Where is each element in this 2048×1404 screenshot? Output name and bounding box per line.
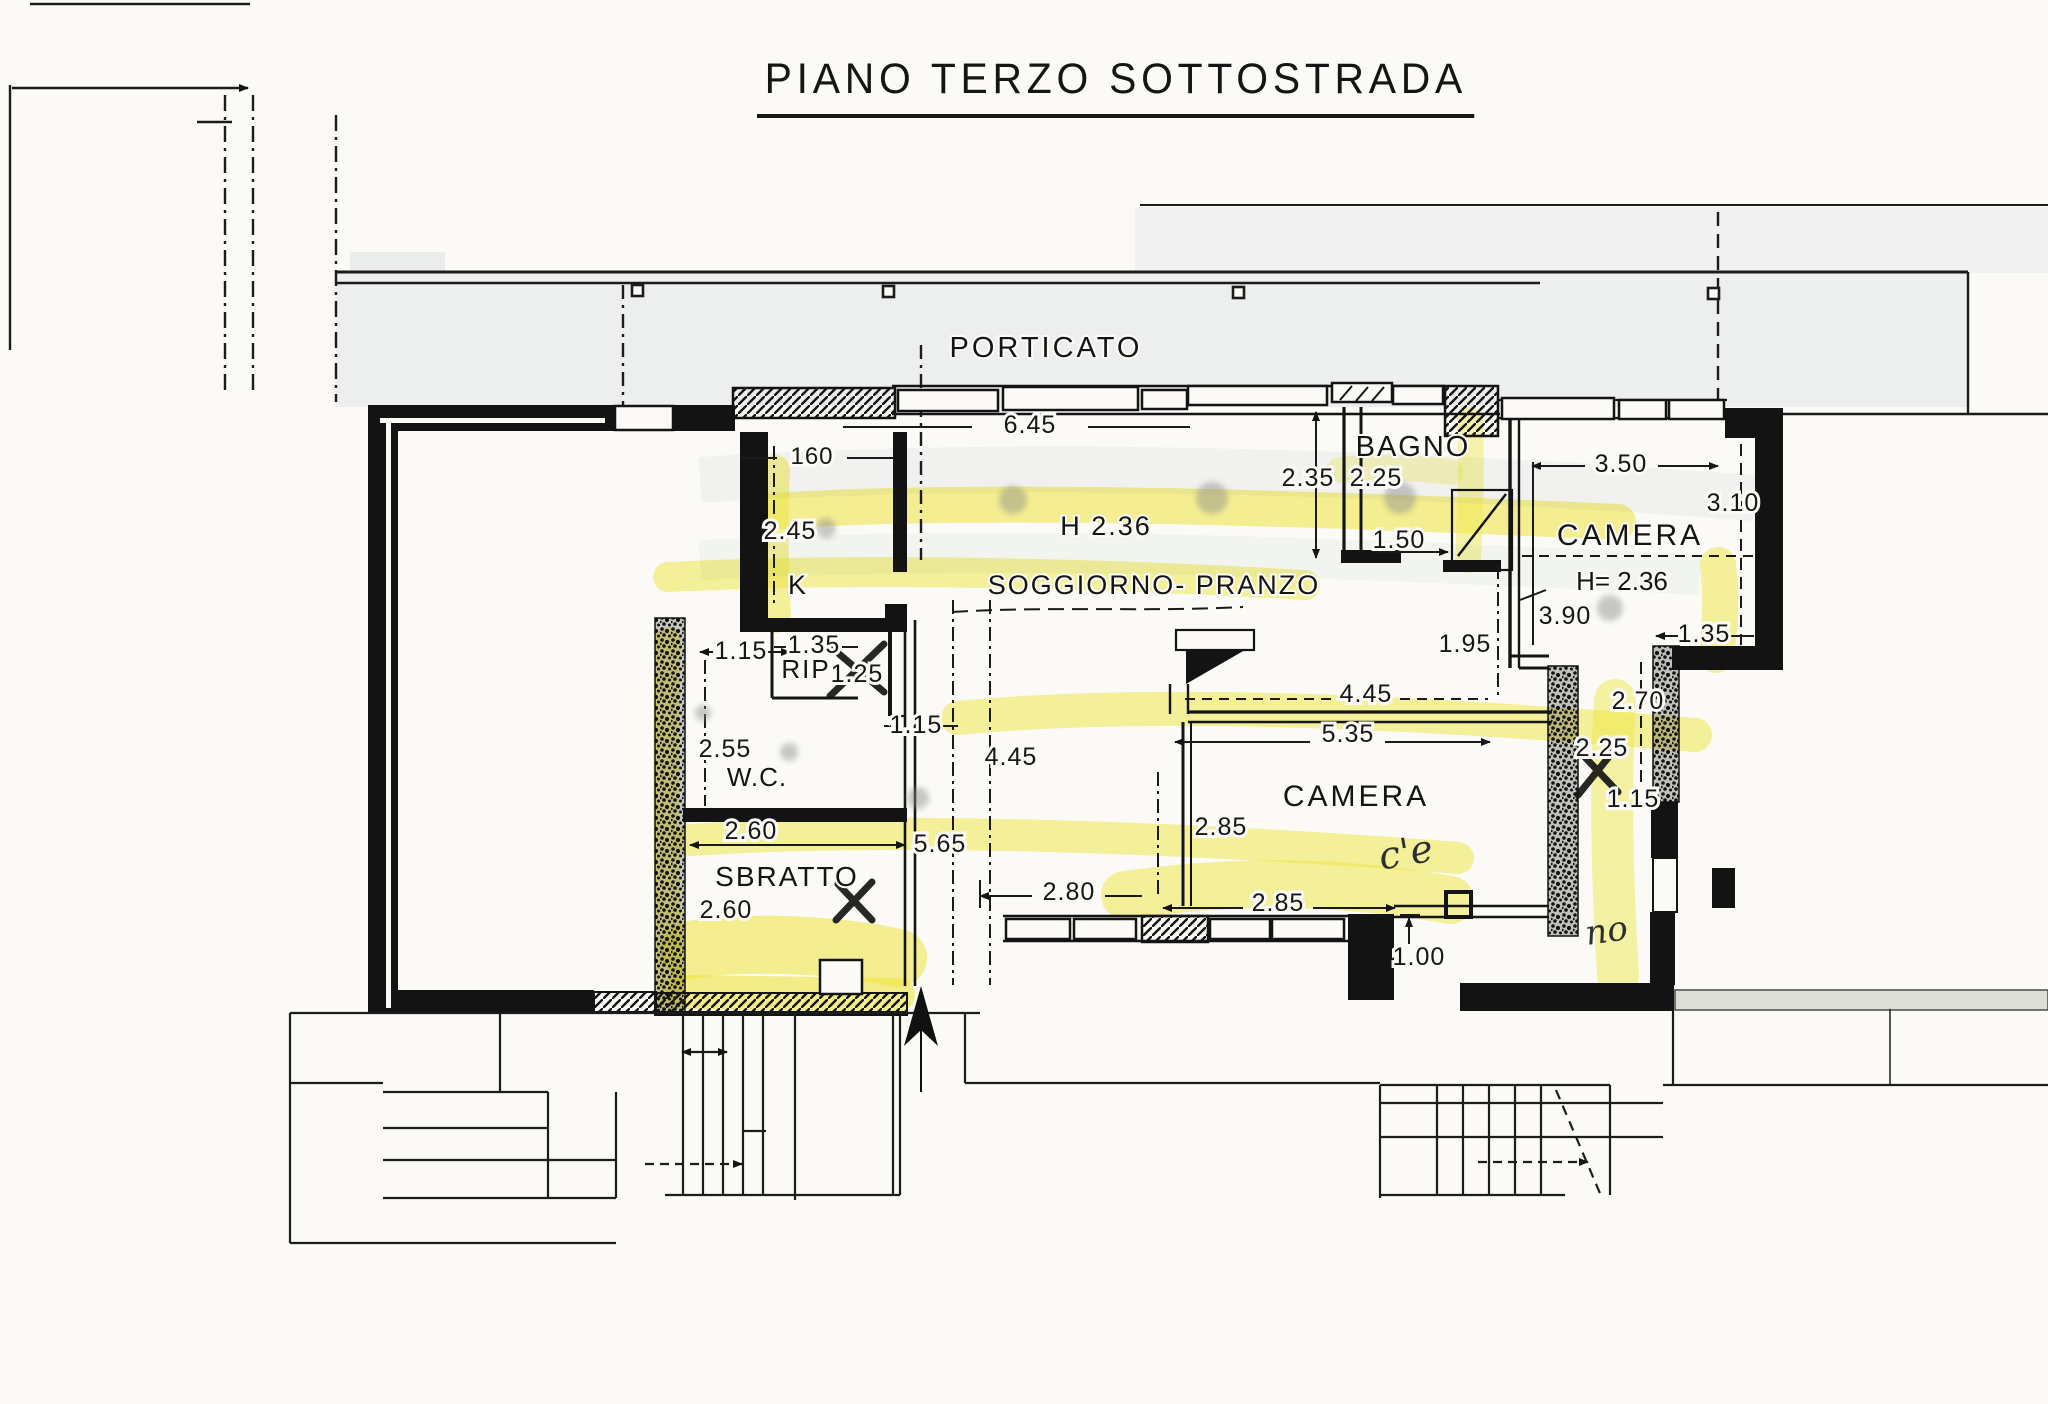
dimension-label-3: 2.35: [1282, 464, 1335, 492]
dimension-label-2: 2.45: [764, 517, 817, 545]
dimension-label-15: 1.15: [715, 637, 768, 665]
room-label-5: H 2.36: [1060, 511, 1152, 541]
dimension-label-24: 5.35: [1322, 720, 1375, 748]
dimension-label-4: 2.25: [1350, 464, 1403, 492]
floor-plan-drawing: PORTICATOBAGNOCAMERAH= 2.36SOGGIORNO- PR…: [0, 0, 2048, 1404]
dimension-label-12: 2.25: [1576, 734, 1629, 762]
dimension-label-21: 5.65: [914, 830, 967, 858]
dimension-label-20: 2.60: [700, 896, 753, 924]
room-label-10: CAMERA: [1283, 780, 1429, 813]
door-swing: [1186, 650, 1245, 684]
dimension-label-28: 1.00: [1393, 943, 1446, 971]
room-label-8: W.C.: [727, 762, 787, 792]
dimension-label-14: 1.35: [788, 631, 841, 659]
dimension-label-18: 2.55: [699, 735, 752, 763]
dimension-label-19: 2.60: [725, 817, 778, 845]
dimension-label-16: 1.25: [831, 660, 884, 688]
dimension-label-10: 1.35: [1678, 620, 1731, 648]
room-label-6: K: [788, 570, 806, 600]
handwritten-note-1: no: [1583, 908, 1631, 954]
room-label-9: SBRATTO: [715, 861, 859, 892]
floor-plan-page: PIANO TERZO SOTTOSTRADA: [0, 0, 2048, 1404]
room-label-0: PORTICATO: [950, 332, 1143, 364]
dimension-label-23: 4.45: [1340, 680, 1393, 708]
dimension-label-5: 1.50: [1373, 526, 1426, 554]
dimension-label-1: 160: [790, 443, 833, 470]
room-label-3: H= 2.36: [1576, 566, 1668, 596]
room-label-2: CAMERA: [1557, 519, 1703, 552]
room-label-1: BAGNO: [1356, 431, 1471, 463]
dimension-label-13: 1.15: [1607, 785, 1660, 813]
dimension-label-17: 1.15: [890, 711, 943, 739]
dimension-label-22: 4.45: [985, 743, 1038, 771]
dimension-label-7: 3.10: [1707, 489, 1760, 517]
dimension-label-9: 1.95: [1439, 630, 1492, 658]
handwritten-note-0: c'e: [1375, 826, 1436, 879]
dimension-label-8: 3.90: [1539, 602, 1592, 630]
dimension-label-25: 2.85: [1195, 813, 1248, 841]
dimension-label-27: 2.80: [1043, 878, 1096, 906]
dimension-label-6: 3.50: [1595, 450, 1648, 478]
room-label-4: SOGGIORNO- PRANZO: [988, 570, 1321, 600]
dimension-label-26: 2.85: [1252, 889, 1305, 917]
dimension-label-0: 6.45: [1004, 411, 1057, 439]
dimension-label-11: 2.70: [1612, 687, 1665, 715]
stairs-and-lower-structures: [290, 990, 2048, 1243]
